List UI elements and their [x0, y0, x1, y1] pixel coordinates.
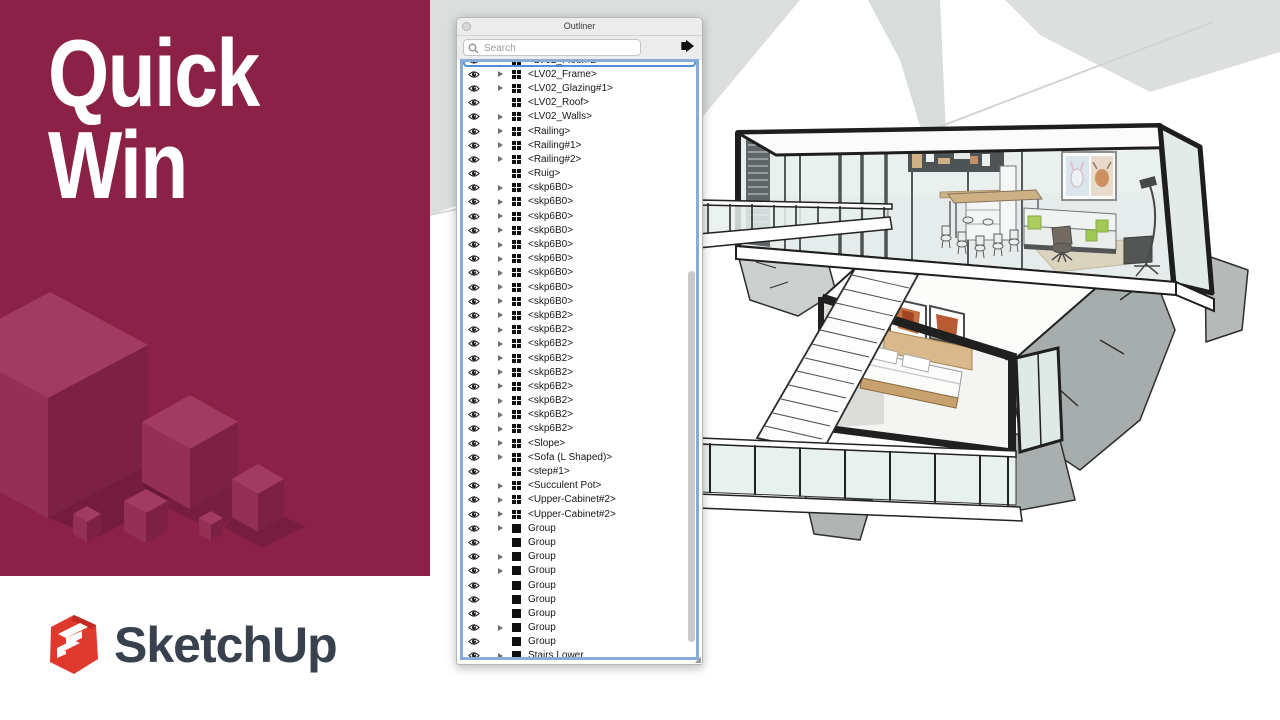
- visibility-eye-icon[interactable]: [468, 524, 480, 533]
- expand-arrow-icon[interactable]: [498, 653, 506, 659]
- expand-arrow-icon[interactable]: [498, 426, 506, 432]
- outliner-row[interactable]: Group: [463, 606, 696, 620]
- expand-arrow-icon[interactable]: [498, 312, 506, 318]
- expand-arrow-icon[interactable]: [498, 270, 506, 276]
- component-grid-icon: [512, 354, 521, 363]
- outliner-item-label: Group: [528, 594, 556, 605]
- outliner-row[interactable]: Group: [463, 621, 696, 635]
- outliner-row[interactable]: <skp6B0>: [463, 294, 696, 308]
- visibility-eye-icon[interactable]: [468, 112, 480, 121]
- visibility-eye-icon[interactable]: [468, 59, 480, 65]
- outliner-item-label: <LV02_Walls>: [528, 111, 592, 122]
- outliner-item-label: <LV02_Floor#2>: [528, 59, 602, 66]
- outliner-row[interactable]: <LV02_Floor#2>: [463, 59, 696, 67]
- group-square-icon: [512, 581, 521, 590]
- component-grid-icon: [512, 396, 521, 405]
- outliner-item-label: Group: [528, 551, 556, 562]
- details-arrow-button[interactable]: [678, 39, 698, 56]
- group-square-icon: [512, 524, 521, 533]
- group-square-icon: [512, 538, 521, 547]
- visibility-eye-icon[interactable]: [468, 538, 480, 547]
- outliner-item-label: <skp6B2>: [528, 338, 573, 349]
- outliner-list[interactable]: <LV02_Floor#2><LV02_Frame><LV02_Glazing#…: [460, 59, 699, 660]
- expand-arrow-icon[interactable]: [498, 199, 506, 205]
- outliner-item-label: <step#1>: [528, 466, 570, 477]
- outliner-item-label: <Railing#1>: [528, 140, 581, 151]
- outliner-item-label: <skp6B2>: [528, 353, 573, 364]
- thumbnail-left-panel: Quick Win: [0, 0, 430, 576]
- outliner-row[interactable]: <skp6B0>: [463, 252, 696, 266]
- visibility-eye-icon[interactable]: [468, 382, 480, 391]
- outliner-item-label: <skp6B0>: [528, 253, 573, 264]
- group-square-icon: [512, 566, 521, 575]
- lower-deck-railing: [698, 438, 1022, 521]
- component-grid-icon: [512, 368, 521, 377]
- component-grid-icon: [512, 70, 521, 79]
- expand-arrow-icon[interactable]: [498, 227, 506, 233]
- brand-name: SketchUp: [114, 616, 337, 674]
- expand-arrow-icon[interactable]: [498, 554, 506, 560]
- expand-arrow-icon[interactable]: [498, 369, 506, 375]
- expand-arrow-icon[interactable]: [498, 298, 506, 304]
- component-grid-icon: [512, 112, 521, 121]
- visibility-eye-icon[interactable]: [468, 311, 480, 320]
- visibility-eye-icon[interactable]: [468, 183, 480, 192]
- expand-arrow-icon[interactable]: [498, 71, 506, 77]
- visibility-eye-icon[interactable]: [468, 84, 480, 93]
- visibility-eye-icon[interactable]: [468, 552, 480, 561]
- visibility-eye-icon[interactable]: [468, 595, 480, 604]
- expand-arrow-icon[interactable]: [498, 341, 506, 347]
- component-grid-icon: [512, 240, 521, 249]
- visibility-eye-icon[interactable]: [468, 510, 480, 519]
- expand-arrow-icon[interactable]: [498, 625, 506, 631]
- details-arrow-icon: [680, 39, 696, 53]
- outliner-item-label: <Railing#2>: [528, 154, 581, 165]
- component-grid-icon: [512, 141, 521, 150]
- expand-arrow-icon[interactable]: [498, 412, 506, 418]
- outliner-item-label: Group: [528, 565, 556, 576]
- outliner-row[interactable]: <skp6B0>: [463, 266, 696, 280]
- outliner-item-label: <Ruig>: [528, 168, 560, 179]
- group-square-icon: [512, 637, 521, 646]
- visibility-eye-icon[interactable]: [468, 169, 480, 178]
- screenshot-stage: Quick Win: [0, 0, 1280, 720]
- component-grid-icon: [512, 410, 521, 419]
- resize-grip[interactable]: [695, 657, 701, 663]
- expand-arrow-icon[interactable]: [498, 483, 506, 489]
- visibility-eye-icon[interactable]: [468, 127, 480, 136]
- outliner-row[interactable]: Stairs Lower: [463, 649, 696, 660]
- expand-arrow-icon[interactable]: [498, 511, 506, 517]
- outliner-row[interactable]: <Succulent Pot>: [463, 479, 696, 493]
- outliner-item-label: <skp6B0>: [528, 211, 573, 222]
- visibility-eye-icon[interactable]: [468, 268, 480, 277]
- expand-arrow-icon[interactable]: [498, 85, 506, 91]
- title-line-2: Win: [48, 120, 259, 212]
- outliner-row[interactable]: <skp6B0>: [463, 280, 696, 294]
- magnifier-icon: [468, 43, 479, 54]
- visibility-eye-icon[interactable]: [468, 325, 480, 334]
- outliner-item-label: <LV02_Frame>: [528, 69, 597, 80]
- outliner-row[interactable]: <skp6B0>: [463, 209, 696, 223]
- outliner-item-label: <Railing>: [528, 126, 570, 137]
- outliner-item-label: Group: [528, 537, 556, 548]
- window-title: Outliner: [457, 18, 702, 35]
- component-grid-icon: [512, 84, 521, 93]
- outliner-row[interactable]: <skp6B0>: [463, 223, 696, 237]
- outliner-item-label: <skp6B0>: [528, 239, 573, 250]
- visibility-eye-icon[interactable]: [468, 297, 480, 306]
- outliner-item-label: <LV02_Roof>: [528, 97, 589, 108]
- outliner-rows: <LV02_Floor#2><LV02_Frame><LV02_Glazing#…: [463, 59, 696, 660]
- expand-arrow-icon[interactable]: [498, 156, 506, 162]
- component-grid-icon: [512, 59, 521, 65]
- group-square-icon: [512, 651, 521, 660]
- decorative-cubes: [0, 266, 430, 576]
- outliner-item-label: <skp6B2>: [528, 367, 573, 378]
- component-grid-icon: [512, 424, 521, 433]
- visibility-eye-icon[interactable]: [468, 481, 480, 490]
- outliner-row[interactable]: <Sofa (L Shaped)>: [463, 450, 696, 464]
- outliner-row[interactable]: <Upper-Cabinet#2>: [463, 507, 696, 521]
- outliner-row[interactable]: Group: [463, 550, 696, 564]
- group-square-icon: [512, 552, 521, 561]
- brand-lockup: SketchUp: [44, 612, 337, 678]
- outliner-row[interactable]: <skp6B2>: [463, 379, 696, 393]
- component-grid-icon: [512, 481, 521, 490]
- visibility-eye-icon[interactable]: [468, 70, 480, 79]
- expand-arrow-icon[interactable]: [498, 128, 506, 134]
- component-grid-icon: [512, 311, 521, 320]
- visibility-eye-icon[interactable]: [468, 439, 480, 448]
- visibility-eye-icon[interactable]: [468, 254, 480, 263]
- expand-arrow-icon[interactable]: [498, 497, 506, 503]
- outliner-item-label: Group: [528, 608, 556, 619]
- search-input[interactable]: [482, 40, 641, 57]
- expand-arrow-icon[interactable]: [498, 440, 506, 446]
- visibility-eye-icon[interactable]: [468, 651, 480, 660]
- expand-arrow-icon[interactable]: [498, 185, 506, 191]
- outliner-row[interactable]: <skp6B2>: [463, 351, 696, 365]
- expand-arrow-icon[interactable]: [498, 525, 506, 531]
- group-square-icon: [512, 609, 521, 618]
- component-grid-icon: [512, 183, 521, 192]
- outliner-row[interactable]: <LV02_Glazing#1>: [463, 81, 696, 95]
- visibility-eye-icon[interactable]: [468, 226, 480, 235]
- expand-arrow-icon[interactable]: [498, 256, 506, 262]
- window-close-icon[interactable]: [462, 22, 471, 31]
- visibility-eye-icon[interactable]: [468, 98, 480, 107]
- outliner-row[interactable]: <Railing#2>: [463, 152, 696, 166]
- component-grid-icon: [512, 226, 521, 235]
- outliner-item-label: <skp6B2>: [528, 409, 573, 420]
- outliner-item-label: <skp6B0>: [528, 196, 573, 207]
- visibility-eye-icon[interactable]: [468, 623, 480, 632]
- component-grid-icon: [512, 268, 521, 277]
- outliner-row[interactable]: <LV02_Walls>: [463, 110, 696, 124]
- search-field[interactable]: [463, 39, 641, 56]
- visibility-eye-icon[interactable]: [468, 354, 480, 363]
- scrollbar-thumb[interactable]: [688, 271, 695, 642]
- outliner-item-label: <Slope>: [528, 438, 565, 449]
- component-grid-icon: [512, 254, 521, 263]
- outliner-row[interactable]: Group: [463, 564, 696, 578]
- outliner-item-label: <skp6B0>: [528, 225, 573, 236]
- outliner-row[interactable]: <skp6B0>: [463, 195, 696, 209]
- component-grid-icon: [512, 495, 521, 504]
- expand-arrow-icon[interactable]: [498, 383, 506, 389]
- outliner-item-label: <skp6B2>: [528, 395, 573, 406]
- outliner-panel: Outliner <LV02_Floor#2><LV02_Frame><LV02…: [456, 17, 703, 665]
- component-grid-icon: [512, 453, 521, 462]
- outliner-row[interactable]: <Upper-Cabinet#2>: [463, 493, 696, 507]
- outliner-row[interactable]: <Railing>: [463, 124, 696, 138]
- visibility-eye-icon[interactable]: [468, 368, 480, 377]
- visibility-eye-icon[interactable]: [468, 283, 480, 292]
- expand-arrow-icon[interactable]: [498, 327, 506, 333]
- outliner-item-label: <skp6B2>: [528, 324, 573, 335]
- outliner-item-label: Group: [528, 636, 556, 647]
- outliner-row[interactable]: <skp6B2>: [463, 422, 696, 436]
- visibility-eye-icon[interactable]: [468, 410, 480, 419]
- outliner-row[interactable]: <step#1>: [463, 464, 696, 478]
- visibility-eye-icon[interactable]: [468, 339, 480, 348]
- outliner-item-label: Stairs Lower: [528, 650, 584, 660]
- visibility-eye-icon[interactable]: [468, 240, 480, 249]
- component-grid-icon: [512, 297, 521, 306]
- visibility-eye-icon[interactable]: [468, 495, 480, 504]
- outliner-row[interactable]: <Ruig>: [463, 167, 696, 181]
- expand-arrow-icon[interactable]: [498, 568, 506, 574]
- expand-arrow-icon[interactable]: [498, 242, 506, 248]
- component-grid-icon: [512, 127, 521, 136]
- expand-arrow-icon[interactable]: [498, 454, 506, 460]
- outliner-row[interactable]: <LV02_Roof>: [463, 96, 696, 110]
- outliner-item-label: Group: [528, 580, 556, 591]
- visibility-eye-icon[interactable]: [468, 453, 480, 462]
- outliner-row[interactable]: <skp6B2>: [463, 365, 696, 379]
- outliner-item-label: <skp6B0>: [528, 182, 573, 193]
- component-grid-icon: [512, 283, 521, 292]
- outliner-item-label: <skp6B2>: [528, 381, 573, 392]
- outliner-row[interactable]: Group: [463, 592, 696, 606]
- outliner-item-label: <Sofa (L Shaped)>: [528, 452, 612, 463]
- expand-arrow-icon[interactable]: [498, 114, 506, 120]
- outliner-item-label: <Upper-Cabinet#2>: [528, 509, 616, 520]
- visibility-eye-icon[interactable]: [468, 212, 480, 221]
- visibility-eye-icon[interactable]: [468, 141, 480, 150]
- component-grid-icon: [512, 169, 521, 178]
- group-square-icon: [512, 595, 521, 604]
- visibility-eye-icon[interactable]: [468, 396, 480, 405]
- expand-arrow-icon[interactable]: [498, 213, 506, 219]
- outliner-row[interactable]: <skp6B0>: [463, 237, 696, 251]
- outliner-item-label: <Succulent Pot>: [528, 480, 601, 491]
- visibility-eye-icon[interactable]: [468, 581, 480, 590]
- outliner-row[interactable]: Group: [463, 535, 696, 549]
- outliner-item-label: <skp6B0>: [528, 296, 573, 307]
- group-square-icon: [512, 623, 521, 632]
- outliner-item-label: <skp6B2>: [528, 423, 573, 434]
- outliner-item-label: <skp6B0>: [528, 282, 573, 293]
- visibility-eye-icon[interactable]: [468, 467, 480, 476]
- outliner-item-label: <skp6B0>: [528, 267, 573, 278]
- outliner-titlebar[interactable]: Outliner: [457, 18, 702, 36]
- outliner-row[interactable]: Group: [463, 635, 696, 649]
- expand-arrow-icon[interactable]: [498, 398, 506, 404]
- outliner-item-label: <LV02_Glazing#1>: [528, 83, 613, 94]
- outliner-row[interactable]: <skp6B2>: [463, 323, 696, 337]
- component-grid-icon: [512, 382, 521, 391]
- outliner-search-row: [457, 36, 702, 60]
- component-grid-icon: [512, 439, 521, 448]
- visibility-eye-icon[interactable]: [468, 424, 480, 433]
- component-grid-icon: [512, 325, 521, 334]
- outliner-item-label: Group: [528, 622, 556, 633]
- outliner-item-label: <Upper-Cabinet#2>: [528, 494, 616, 505]
- outliner-row[interactable]: <LV02_Frame>: [463, 67, 696, 81]
- expand-arrow-icon[interactable]: [498, 355, 506, 361]
- outliner-row[interactable]: <skp6B2>: [463, 394, 696, 408]
- sketchup-logo-icon: [44, 612, 102, 678]
- component-grid-icon: [512, 467, 521, 476]
- outliner-row[interactable]: Group: [463, 578, 696, 592]
- visibility-eye-icon[interactable]: [468, 197, 480, 206]
- component-grid-icon: [512, 212, 521, 221]
- outliner-item-label: Group: [528, 523, 556, 534]
- expand-arrow-icon[interactable]: [498, 284, 506, 290]
- expand-arrow-icon[interactable]: [498, 142, 506, 148]
- component-grid-icon: [512, 197, 521, 206]
- outliner-row[interactable]: <Slope>: [463, 436, 696, 450]
- outliner-row[interactable]: <skp6B0>: [463, 181, 696, 195]
- outliner-row[interactable]: <skp6B2>: [463, 408, 696, 422]
- component-grid-icon: [512, 510, 521, 519]
- visibility-eye-icon[interactable]: [468, 155, 480, 164]
- outliner-row[interactable]: Group: [463, 521, 696, 535]
- component-grid-icon: [512, 339, 521, 348]
- outliner-row[interactable]: <Railing#1>: [463, 138, 696, 152]
- visibility-eye-icon[interactable]: [468, 609, 480, 618]
- page-title: Quick Win: [48, 28, 259, 212]
- outliner-row[interactable]: <skp6B2>: [463, 337, 696, 351]
- outliner-row[interactable]: <skp6B2>: [463, 308, 696, 322]
- component-grid-icon: [512, 155, 521, 164]
- outliner-item-label: <skp6B2>: [528, 310, 573, 321]
- visibility-eye-icon[interactable]: [468, 566, 480, 575]
- component-grid-icon: [512, 98, 521, 107]
- title-line-1: Quick: [48, 28, 259, 120]
- visibility-eye-icon[interactable]: [468, 637, 480, 646]
